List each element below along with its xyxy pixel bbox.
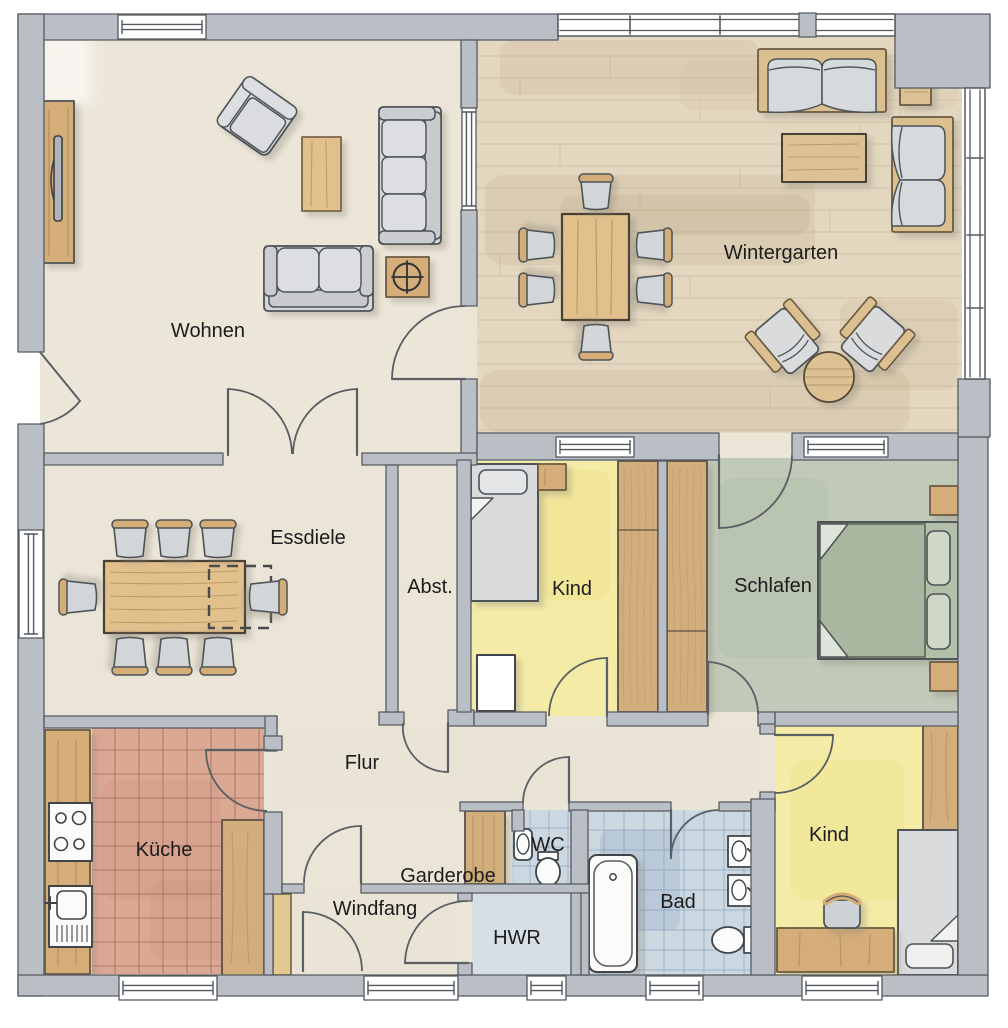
- svg-text:Abst.: Abst.: [407, 576, 453, 598]
- svg-text:Bad: Bad: [660, 891, 696, 913]
- svg-text:HWR: HWR: [493, 927, 541, 949]
- svg-text:Schlafen: Schlafen: [734, 575, 812, 597]
- svg-text:Kind: Kind: [552, 578, 592, 600]
- svg-text:WC: WC: [531, 834, 564, 856]
- svg-text:Wohnen: Wohnen: [171, 320, 245, 342]
- svg-text:Garderobe: Garderobe: [400, 865, 496, 887]
- svg-text:Kind: Kind: [809, 824, 849, 846]
- svg-text:Flur: Flur: [345, 752, 380, 774]
- svg-text:Windfang: Windfang: [333, 898, 418, 920]
- svg-text:Küche: Küche: [136, 839, 193, 861]
- svg-text:Wintergarten: Wintergarten: [724, 242, 839, 264]
- svg-text:Essdiele: Essdiele: [270, 527, 346, 549]
